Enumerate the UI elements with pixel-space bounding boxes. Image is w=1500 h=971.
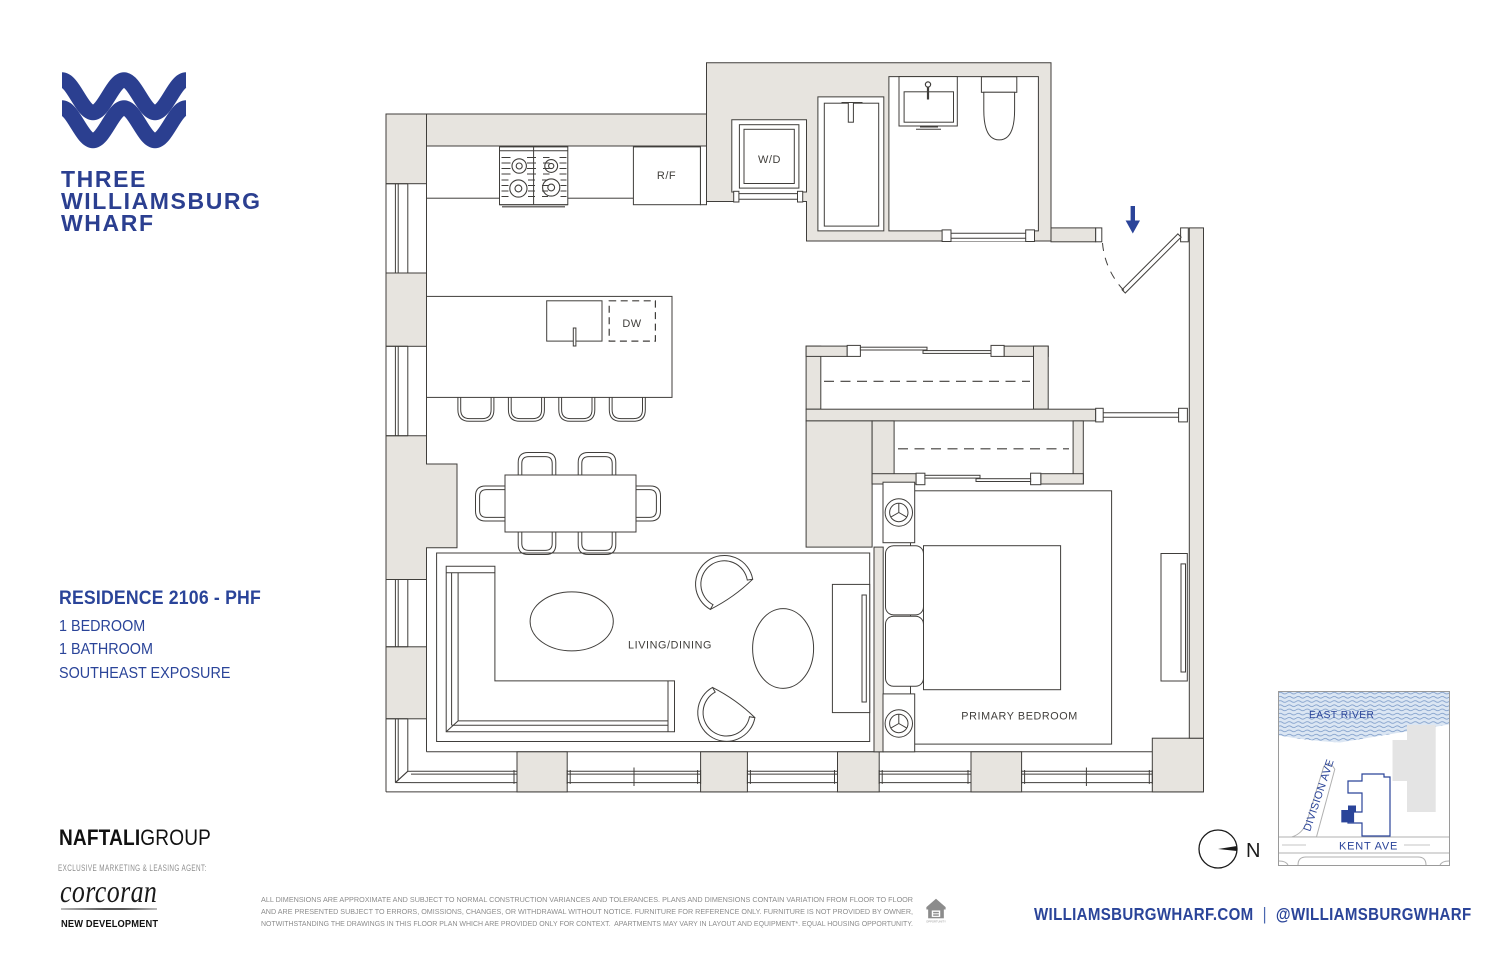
svg-text:LIVING/DINING: LIVING/DINING	[628, 640, 712, 652]
svg-text:PRIMARY BEDROOM: PRIMARY BEDROOM	[961, 711, 1078, 723]
svg-text:W/D: W/D	[758, 154, 781, 166]
svg-text:R/F: R/F	[657, 170, 676, 182]
svg-text:DW: DW	[622, 318, 641, 330]
